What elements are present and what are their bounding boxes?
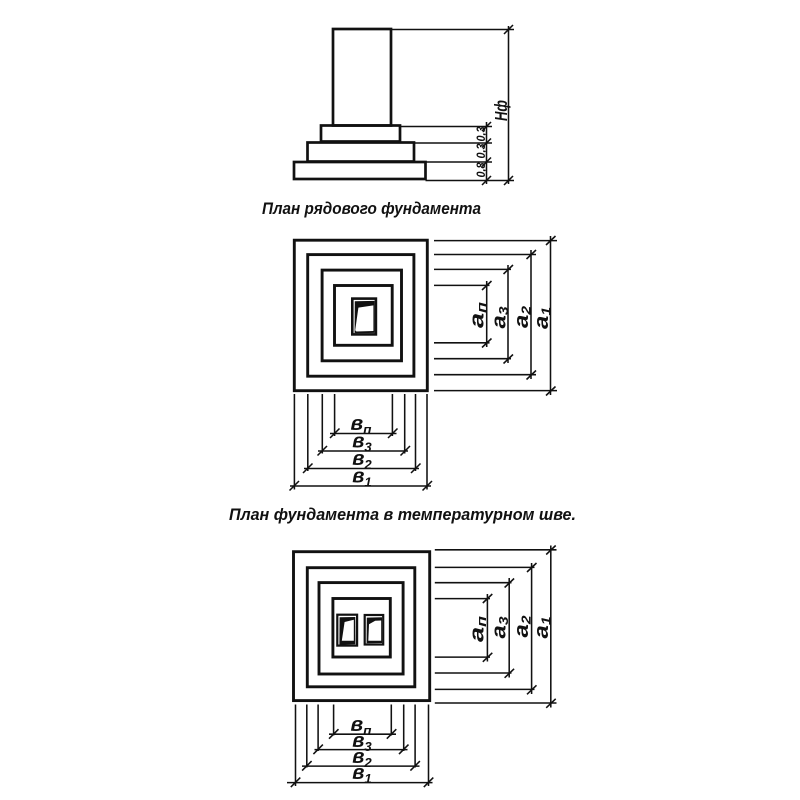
- svg-text:0,3: 0,3: [474, 143, 488, 158]
- svg-text:ап: ап: [467, 302, 490, 328]
- svg-text:а3: а3: [489, 616, 512, 639]
- svg-text:0,3: 0,3: [474, 126, 488, 141]
- svg-text:Нф: Нф: [491, 100, 511, 121]
- svg-text:План фундамента в температурно: План фундамента в температурном шве.: [229, 506, 576, 524]
- svg-text:а3: а3: [489, 306, 512, 329]
- svg-text:ап: ап: [467, 616, 490, 642]
- svg-text:а1: а1: [531, 307, 554, 329]
- svg-text:План рядового фундамента: План рядового фундамента: [262, 200, 481, 218]
- svg-text:а1: а1: [531, 617, 554, 639]
- svg-text:0,8: 0,8: [474, 162, 488, 177]
